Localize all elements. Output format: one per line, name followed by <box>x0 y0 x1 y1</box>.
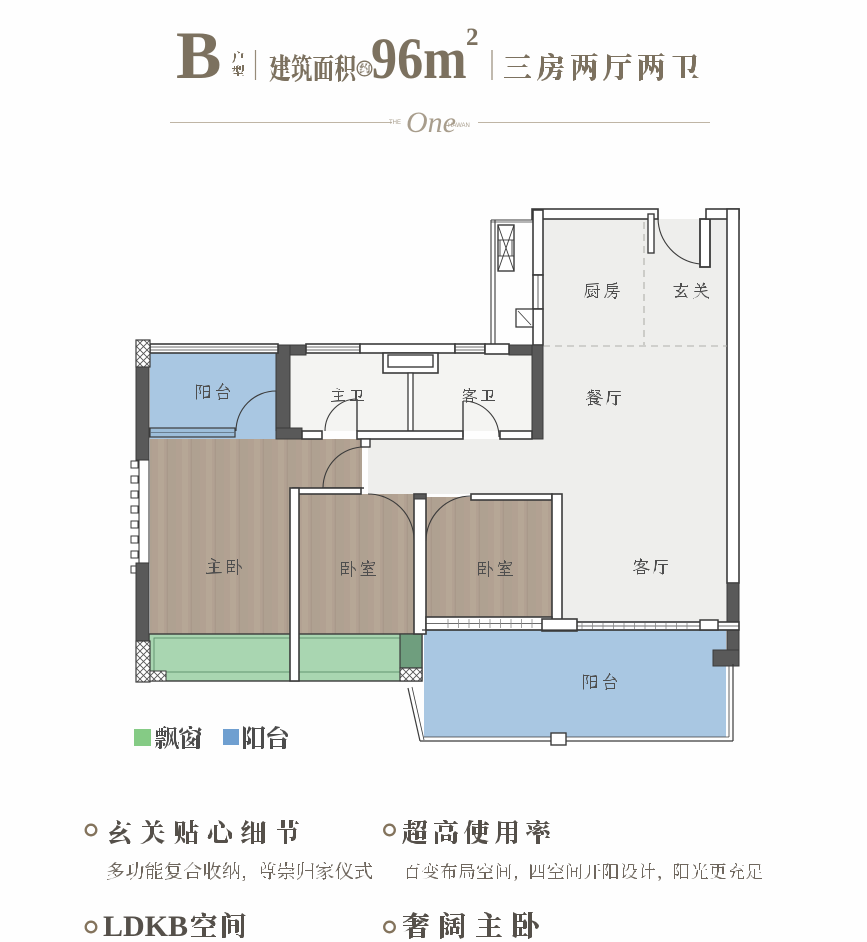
svg-text:96m: 96m <box>371 26 467 90</box>
svg-text:LDKB: LDKB <box>103 910 188 942</box>
svg-text:HAWAN: HAWAN <box>448 123 470 129</box>
svg-text:B: B <box>176 17 221 93</box>
svg-text:2: 2 <box>466 24 479 51</box>
svg-text:THE: THE <box>389 120 401 126</box>
